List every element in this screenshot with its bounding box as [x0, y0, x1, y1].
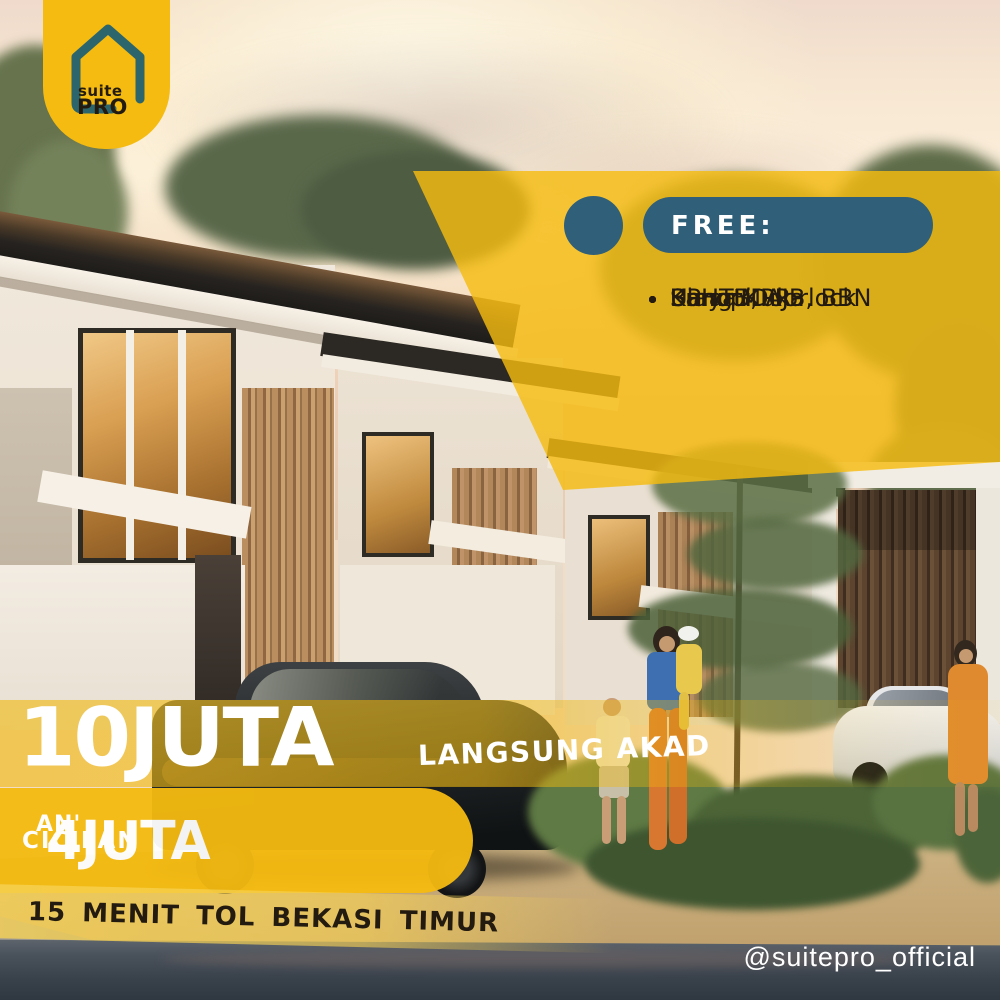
lit-window: [362, 432, 434, 557]
free-badge: FREE:: [643, 197, 933, 253]
free-item: Kanopi: [670, 286, 752, 310]
dp-amount: 10JUTA: [18, 694, 332, 782]
logo-text-pro: PRO: [77, 95, 128, 119]
bush: [585, 818, 920, 910]
social-handle: @suitepro_official: [743, 942, 976, 973]
installment-suffix: AN': [36, 812, 81, 837]
installment-banner: CICILAN 4JUTA AN': [0, 788, 473, 893]
flyer-canvas: FREE: BPHTB, AJB, BBN Uang Muka Biaya KP…: [0, 0, 1000, 1000]
location-note: 15 MENIT TOL BEKASI TIMUR: [27, 885, 499, 950]
brand-logo: suite PRO: [43, 0, 170, 149]
teal-dot: [564, 196, 623, 255]
free-title: FREE:: [671, 197, 775, 255]
